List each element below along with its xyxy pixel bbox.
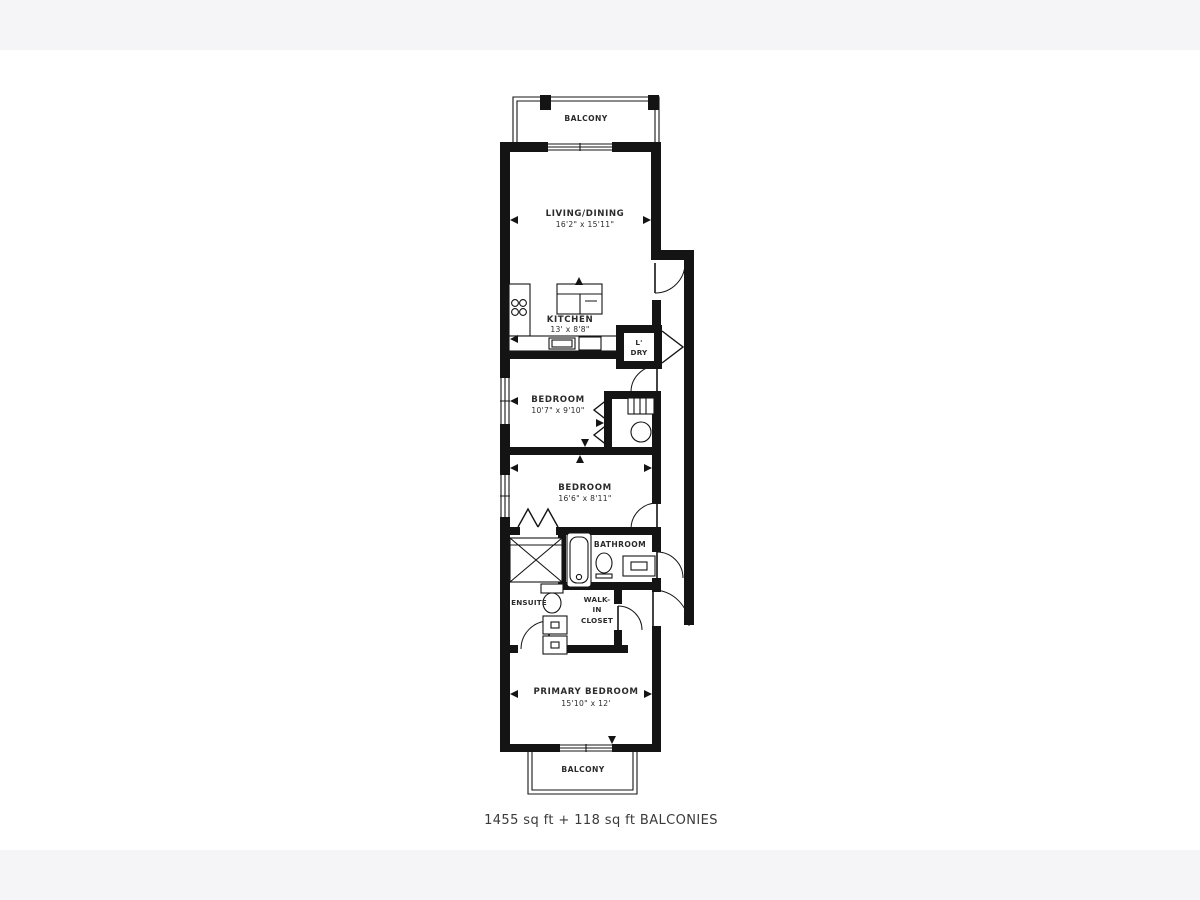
walk-in-closet-line2: IN	[592, 605, 601, 614]
bedroom2-door-arc	[631, 503, 657, 529]
walk-in-door-arc	[618, 606, 642, 630]
primary-bedroom-label: PRIMARY BEDROOM	[533, 687, 638, 697]
pedestal-sink-icon	[596, 553, 612, 578]
laundry-label-line2: DRY	[631, 348, 649, 357]
laundry-closet	[616, 325, 662, 369]
balcony-post	[648, 95, 659, 110]
small-bath-fixtures	[628, 398, 654, 442]
hall-end-door-arc	[653, 590, 689, 626]
dishwasher-icon	[579, 337, 601, 350]
kitchen-label: KITCHEN	[547, 315, 593, 325]
toilet-icon	[631, 422, 651, 442]
floor-plan-svg: BALCONY LIVING/DINING 16'2" x 15'11" KIT…	[0, 0, 1200, 900]
vanity-icon	[623, 556, 655, 576]
laundry-doors	[662, 331, 683, 363]
shower-icon	[510, 538, 562, 582]
bathroom-label: BATHROOM	[594, 540, 646, 549]
balcony-post	[540, 95, 551, 110]
ensuite-label: ENSUITE	[511, 598, 547, 607]
bedroom2-bifold-doors	[518, 509, 558, 527]
bathroom-door-arc	[657, 552, 683, 578]
bedroom1-dims: 10'7" x 9'10"	[531, 406, 584, 415]
floor-plan-page: BALCONY LIVING/DINING 16'2" x 15'11" KIT…	[0, 0, 1200, 900]
walk-in-closet-line3: CLOSET	[581, 616, 613, 625]
balcony-bottom-label: BALCONY	[561, 765, 604, 774]
kitchen-island	[557, 284, 602, 314]
balcony-top-label: BALCONY	[564, 114, 607, 123]
living-dining-label: LIVING/DINING	[546, 209, 625, 219]
balcony-slider-bottom	[560, 744, 612, 752]
bedroom1-door-arc	[631, 366, 657, 392]
vanity-icon	[628, 398, 654, 414]
bedroom2-dims: 16'6" x 8'11"	[558, 494, 611, 503]
sink-icon	[549, 338, 575, 349]
living-dining-dims: 16'2" x 15'11"	[556, 220, 615, 229]
bedroom2-label: BEDROOM	[558, 483, 612, 493]
balcony-slider-top	[548, 143, 612, 151]
vanity-icon	[543, 616, 567, 654]
walk-in-closet-line1: WALK-	[584, 595, 611, 604]
walls	[500, 142, 694, 752]
primary-bedroom-dims: 15'10" x 12'	[561, 699, 611, 708]
bathtub-icon	[567, 533, 591, 587]
kitchen-dims: 13' x 8'8"	[550, 325, 589, 334]
area-caption: 1455 sq ft + 118 sq ft BALCONIES	[484, 813, 718, 828]
entry-door-arc	[655, 263, 685, 293]
laundry-label-line1: L'	[635, 338, 642, 347]
ensuite-fixtures	[510, 538, 567, 654]
bedroom1-label: BEDROOM	[531, 395, 585, 405]
